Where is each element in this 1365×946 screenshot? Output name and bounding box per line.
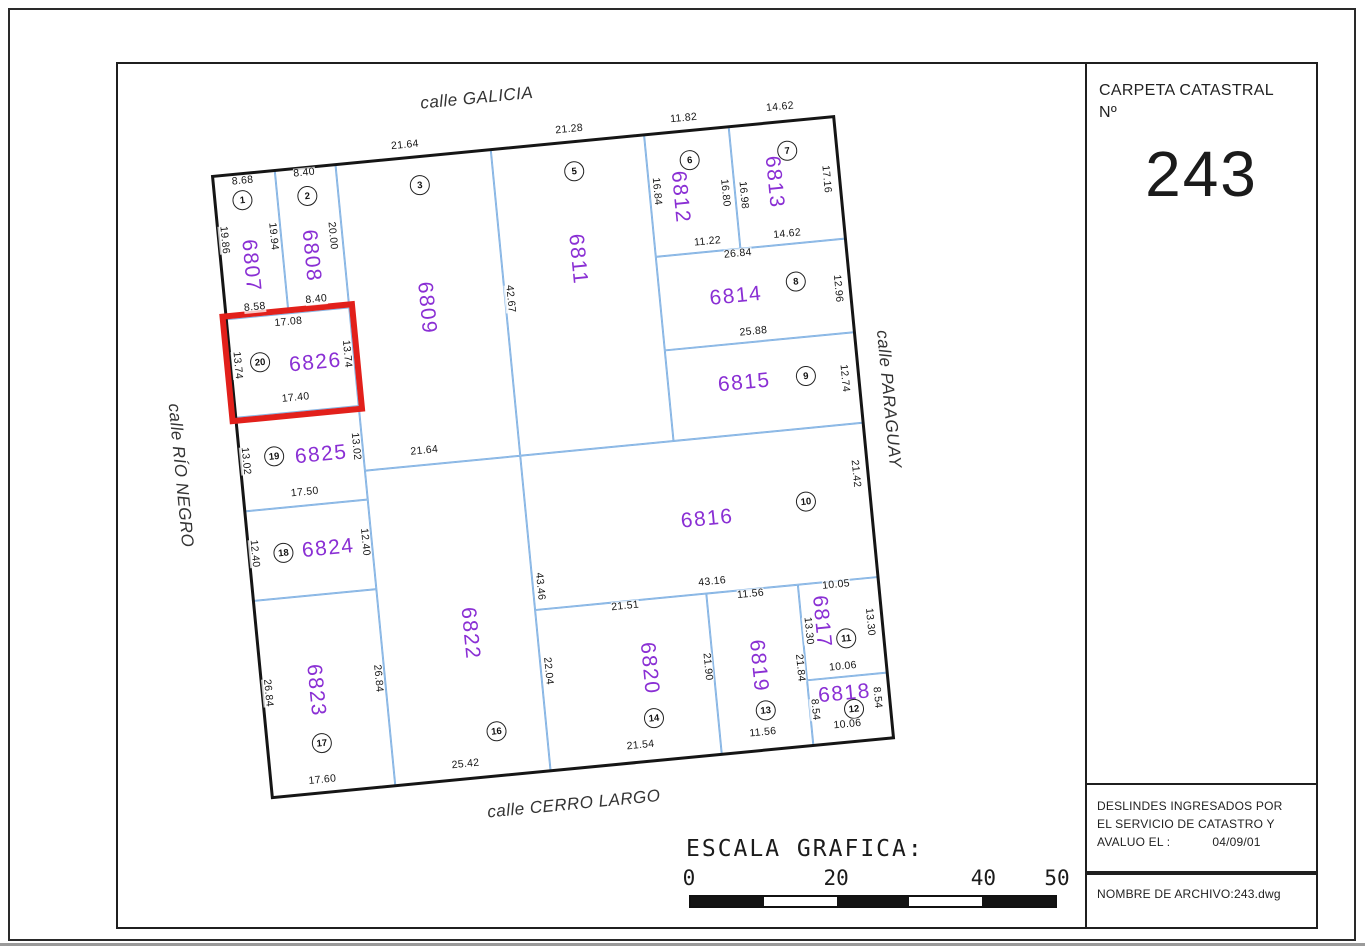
parcel-number-6816: 6816 <box>680 505 735 534</box>
carpeta-number: 243 <box>1099 137 1304 211</box>
dimension-label: 22.04 <box>541 657 555 686</box>
dimension-label: 16.84 <box>650 177 664 206</box>
deslindes-line1: DESLINDES INGRESADOS POR <box>1097 797 1306 815</box>
deslindes-label: AVALUO EL : <box>1097 833 1170 851</box>
dimension-label: 21.90 <box>701 652 715 681</box>
scale-segment-light <box>764 897 837 906</box>
scale-tick-20: 20 <box>824 866 849 890</box>
city-block-map: 6807168082680936811568126681376814868159… <box>212 116 894 798</box>
dimension-label: 12.96 <box>831 274 845 303</box>
parcel-number-6823: 6823 <box>301 663 330 718</box>
parcel-number-6826: 6826 <box>288 348 343 377</box>
parcel-number-6809: 6809 <box>412 281 441 336</box>
scale-bar <box>689 895 1057 908</box>
dimension-label: 13.74 <box>340 340 354 369</box>
dimension-label: 8.58 <box>244 301 267 314</box>
dimension-label: 13.02 <box>349 432 363 461</box>
parcel-number-6825: 6825 <box>294 440 349 469</box>
dimension-label: 12.40 <box>358 528 372 557</box>
dimension-label: 42.67 <box>503 285 517 314</box>
dimension-label: 43.46 <box>533 572 547 601</box>
scale-tick-50: 50 <box>1044 866 1069 890</box>
dimension-label: 16.98 <box>736 181 750 210</box>
dimension-label: 12.74 <box>837 364 851 393</box>
carpeta-label-line1: CARPETA CATASTRAL <box>1099 80 1304 102</box>
dimension-label: 16.80 <box>718 179 732 208</box>
dimension-label: 21.42 <box>849 459 863 488</box>
dimension-label: 13.30 <box>863 608 877 637</box>
dimension-label: 8.68 <box>231 175 254 188</box>
archivo-box: NOMBRE DE ARCHIVO:243.dwg <box>1085 873 1318 929</box>
parcel-number-6807: 6807 <box>236 238 265 293</box>
scale-tick-40: 40 <box>971 866 996 890</box>
parcel-number-6812: 6812 <box>666 170 695 225</box>
dimension-label: 17.16 <box>819 165 833 194</box>
dimension-label: 8.54 <box>871 686 884 709</box>
dimension-label: 12.40 <box>248 539 262 568</box>
scale-segment-light <box>909 897 982 906</box>
archivo-text: NOMBRE DE ARCHIVO:243.dwg <box>1097 887 1306 901</box>
dimension-label: 20.00 <box>325 221 339 250</box>
scale-tick-0: 0 <box>683 866 696 890</box>
dimension-label: 19.86 <box>217 226 231 255</box>
deslindes-box: DESLINDES INGRESADOS POR EL SERVICIO DE … <box>1085 783 1318 873</box>
dimension-label: 8.54 <box>808 698 821 721</box>
parcel-number-6808: 6808 <box>297 228 326 283</box>
parcel-number-6814: 6814 <box>709 282 764 311</box>
scale-segment-dark <box>982 897 1055 906</box>
scale-segment-dark <box>691 897 764 906</box>
dimension-label: 8.40 <box>293 167 316 180</box>
dimension-label: 13.30 <box>802 617 816 646</box>
parcel-number-6820: 6820 <box>635 641 664 696</box>
parcel-number-6824: 6824 <box>301 534 356 563</box>
dimension-label: 8.40 <box>305 293 328 306</box>
parcel-number-6819: 6819 <box>744 638 773 693</box>
dimension-label: 13.02 <box>239 447 253 476</box>
carpeta-label-line2: Nº <box>1099 102 1304 124</box>
parcel-number-6815: 6815 <box>717 368 772 397</box>
dimension-label: 26.84 <box>261 679 275 708</box>
dimension-label: 21.84 <box>793 654 807 683</box>
parcel-number-6811: 6811 <box>563 233 592 286</box>
deslindes-line2: EL SERVICIO DE CATASTRO Y <box>1097 815 1306 833</box>
scale-segment-dark <box>837 897 910 906</box>
deslindes-date: 04/09/01 <box>1212 833 1260 851</box>
parcel-number-6813: 6813 <box>760 155 789 210</box>
cadastral-sheet: 6807168082680936811568126681376814868159… <box>0 0 1365 946</box>
dimension-label: 13.74 <box>230 351 244 380</box>
dimension-label: 26.84 <box>371 664 385 693</box>
scale-ticks: 0204050 <box>689 866 1057 890</box>
dimension-label: 19.94 <box>266 222 280 251</box>
parcel-number-6822: 6822 <box>456 606 485 661</box>
scale-title: ESCALA GRAFICA: <box>686 836 924 862</box>
